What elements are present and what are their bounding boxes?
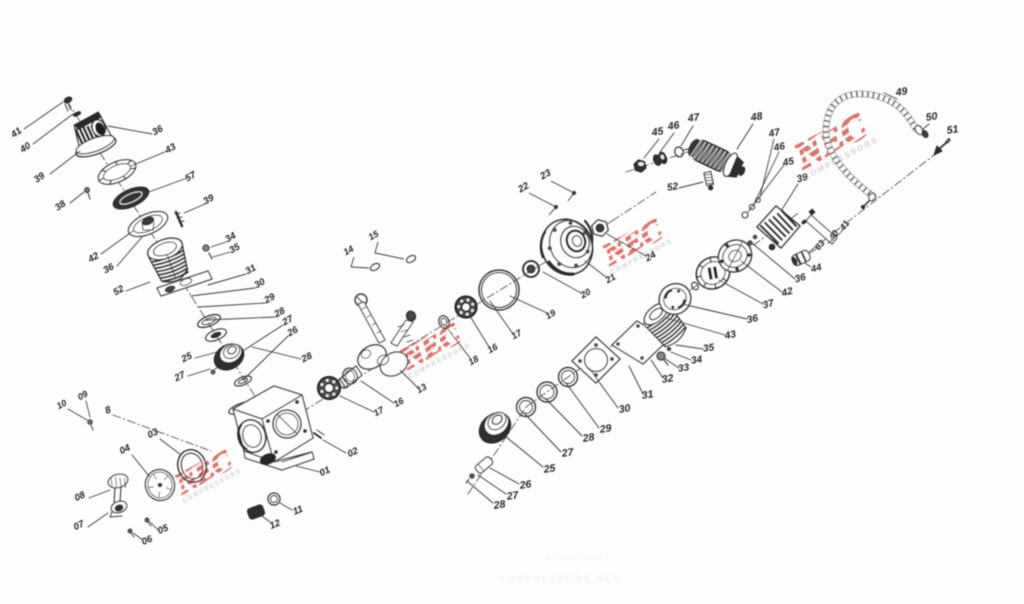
- svg-text:31: 31: [641, 388, 654, 402]
- svg-text:28: 28: [492, 498, 506, 512]
- svg-text:33: 33: [677, 362, 690, 375]
- svg-text:32: 32: [661, 372, 674, 386]
- svg-text:50: 50: [925, 110, 938, 124]
- svg-text:26: 26: [518, 478, 532, 492]
- svg-text:35: 35: [702, 342, 715, 355]
- svg-text:46: 46: [666, 119, 680, 133]
- svg-text:compressors: compressors: [547, 553, 604, 562]
- svg-text:COMPRESSORS NEC: COMPRESSORS NEC: [499, 574, 622, 584]
- svg-text:30: 30: [618, 402, 631, 416]
- svg-text:29: 29: [598, 422, 612, 436]
- svg-text:34: 34: [690, 354, 703, 367]
- svg-text:48: 48: [749, 110, 763, 124]
- svg-text:52: 52: [666, 181, 679, 194]
- svg-text:51: 51: [946, 123, 959, 137]
- svg-text:28: 28: [581, 431, 595, 445]
- svg-text:49: 49: [894, 85, 908, 99]
- svg-text:25: 25: [542, 462, 556, 476]
- svg-text:45: 45: [650, 125, 664, 139]
